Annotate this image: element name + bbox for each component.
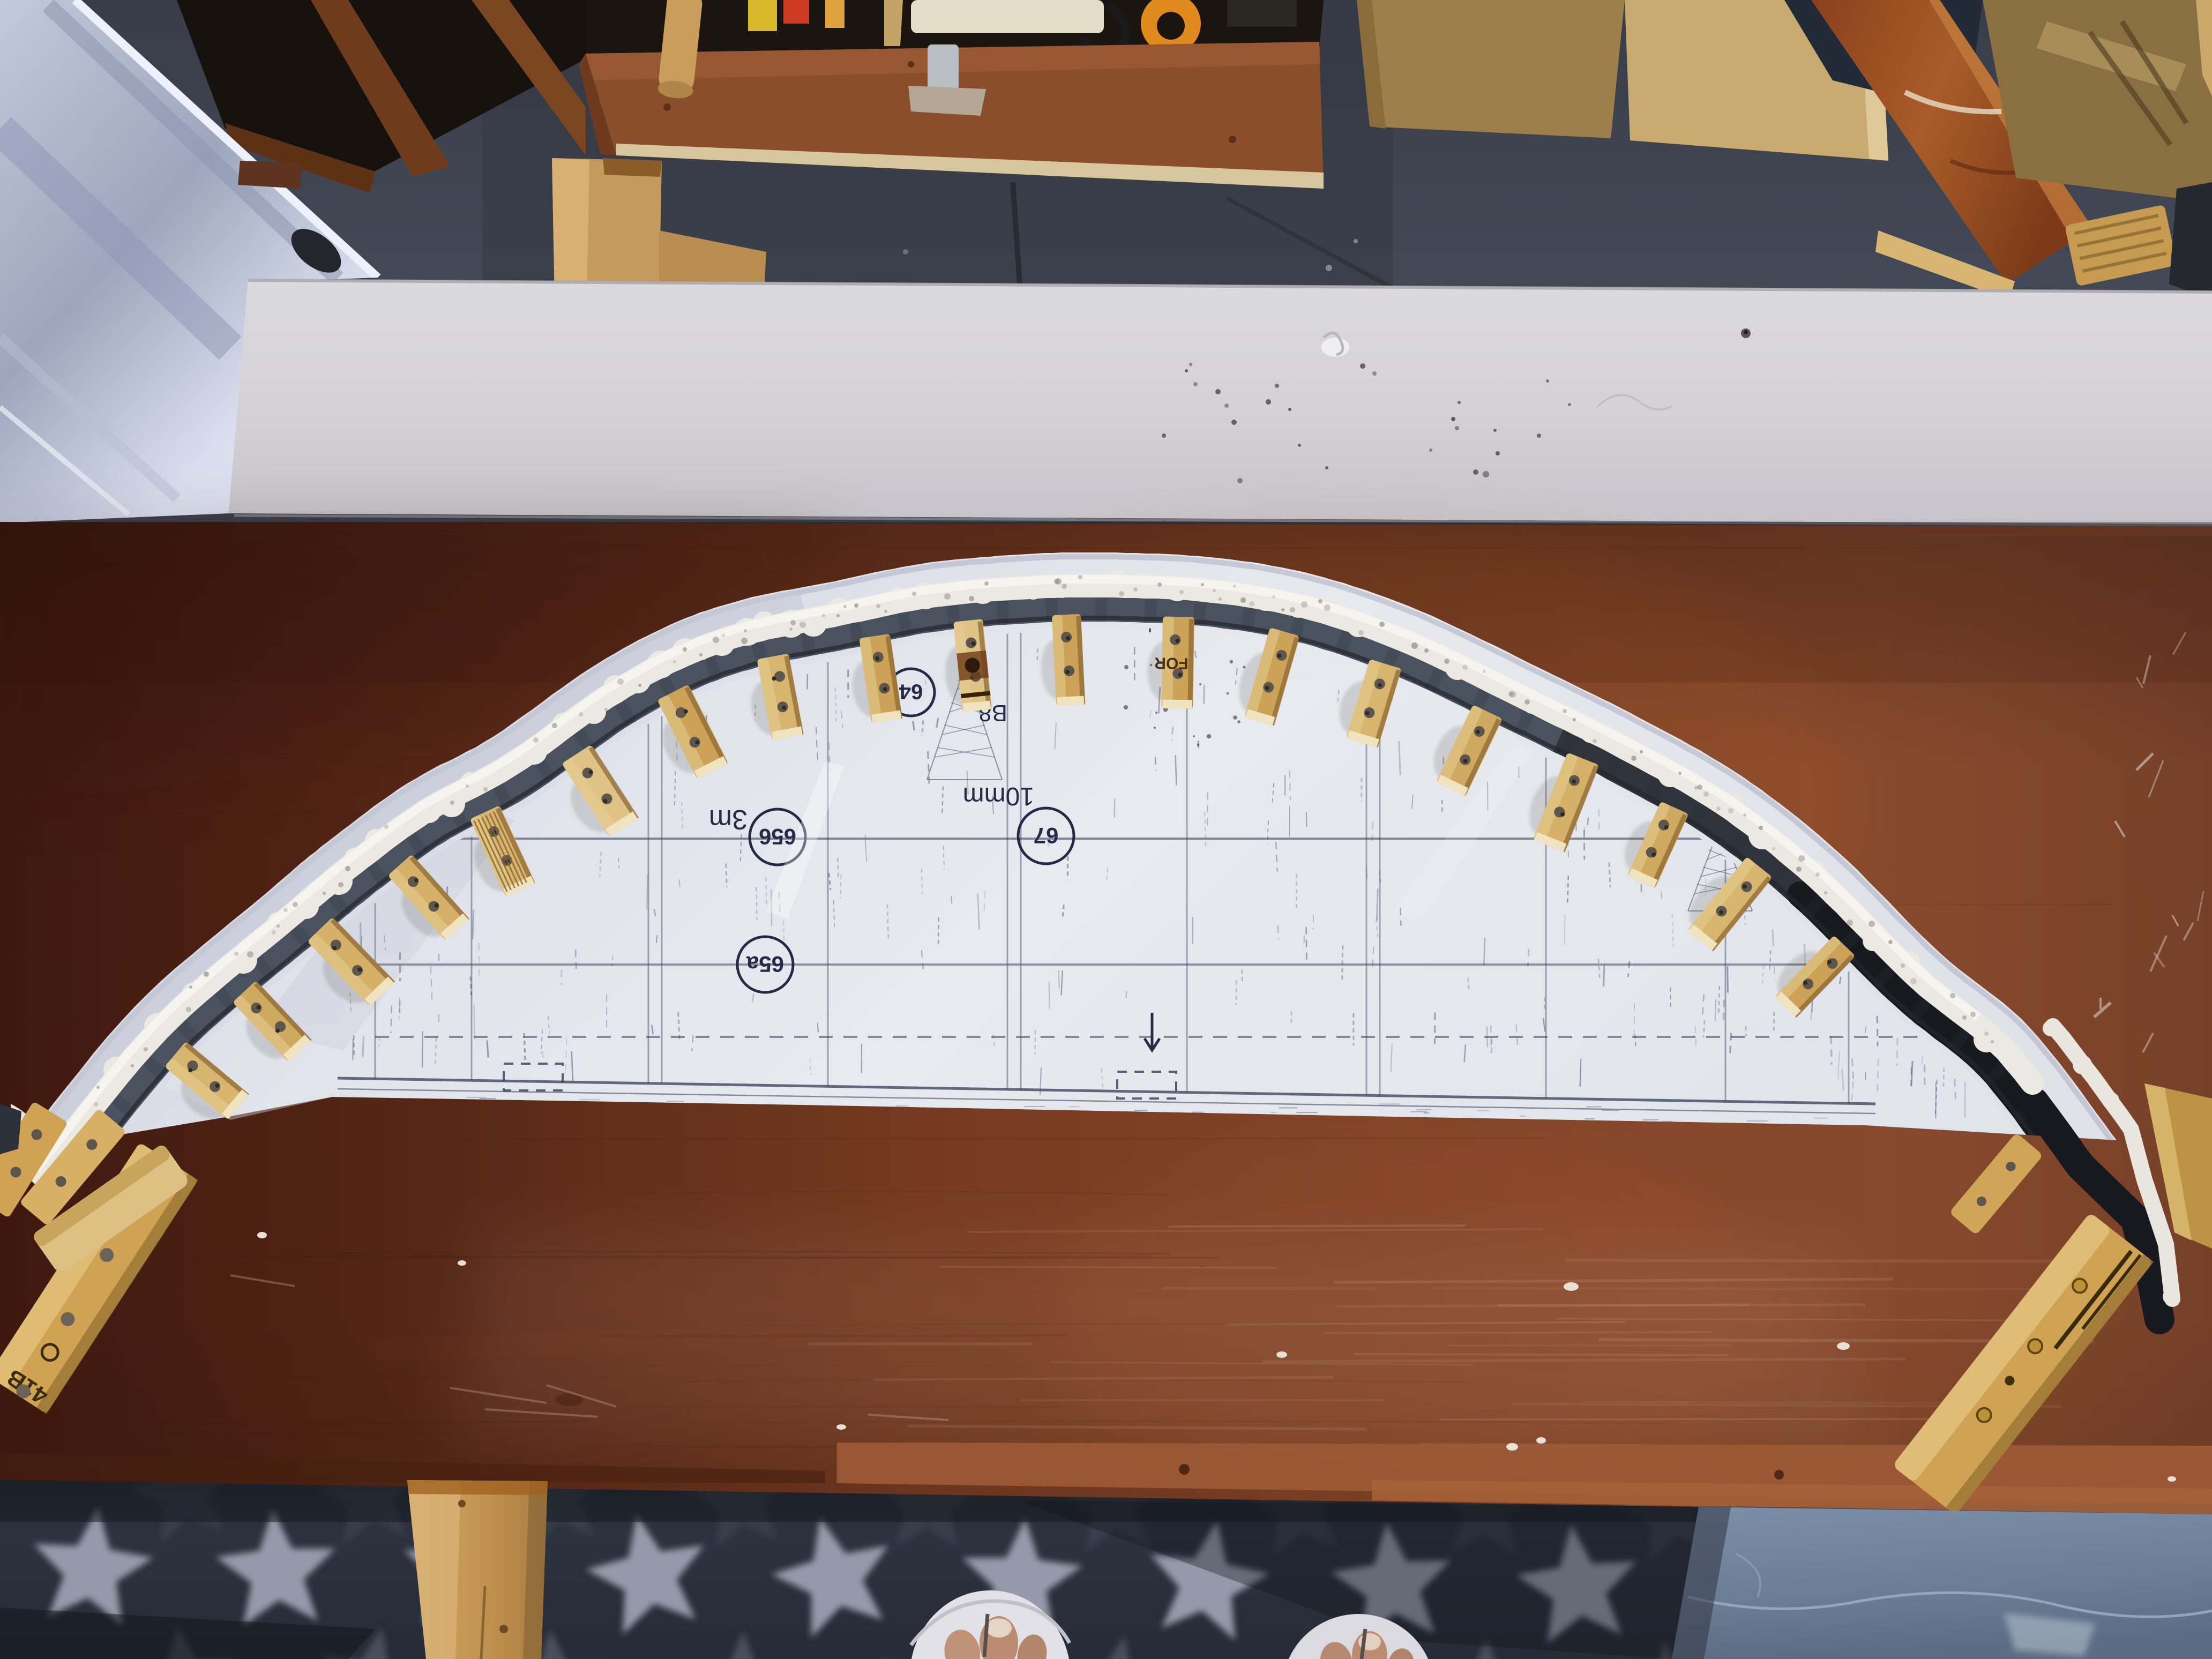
svg-text:656: 656: [759, 824, 796, 849]
svg-text:3m: 3m: [709, 804, 748, 835]
svg-text:FOR: FOR: [1154, 654, 1189, 672]
svg-text:10mm: 10mm: [963, 782, 1034, 810]
svg-text:65a: 65a: [746, 952, 784, 977]
svg-text:67: 67: [1034, 823, 1059, 848]
svg-text:64: 64: [899, 680, 923, 704]
